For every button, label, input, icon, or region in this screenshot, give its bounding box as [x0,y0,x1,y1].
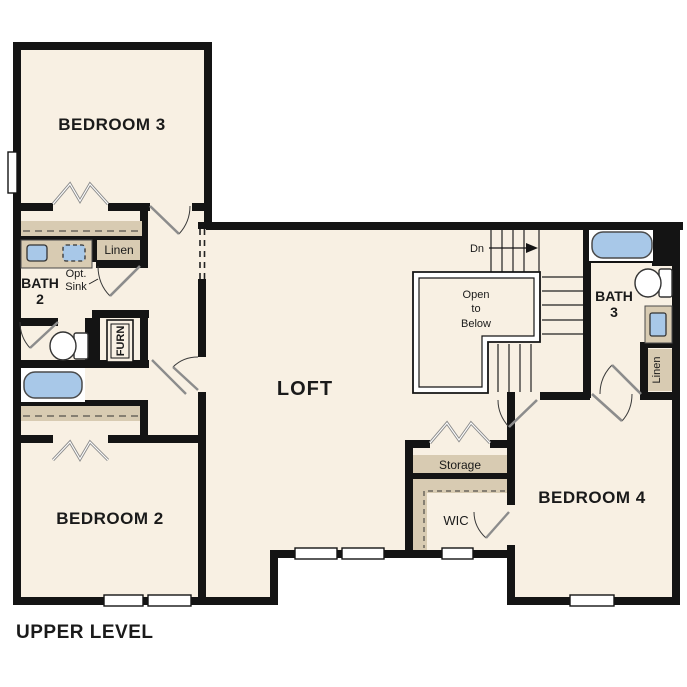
label-open-below-2: to [471,303,480,315]
bathtub-icon [24,372,82,398]
label-bedroom3: BEDROOM 3 [58,115,165,134]
toilet-icon [50,332,76,360]
wall [540,392,590,400]
closet-shelf [21,221,142,236]
wall [640,342,648,398]
label-bedroom2: BEDROOM 2 [56,509,163,528]
optional-sink-icon [63,245,85,261]
label-opt-sink2: Sink [65,281,87,293]
wall [507,545,515,605]
bathtub-icon [592,232,652,258]
wall [672,222,680,605]
sink-icon [27,245,47,261]
wall [198,222,206,229]
window [104,595,143,606]
label-linen-right: Linen [651,357,663,384]
label-loft: LOFT [277,378,333,400]
wall [212,597,278,605]
window [442,548,473,559]
wall [21,203,53,211]
wall [640,392,680,400]
label-open-below-1: Open [463,289,490,301]
toilet-icon [635,269,661,297]
wall [13,42,212,50]
wall [270,550,278,605]
wall [204,42,212,226]
label-open-below-3: Below [461,318,491,330]
label-bath3-number: 3 [610,304,618,320]
closet-shelf [21,406,140,421]
wall [405,473,515,479]
label-bedroom4: BEDROOM 4 [538,488,646,507]
wall [507,392,515,505]
label-bath3: BATH [595,288,633,304]
window [342,548,384,559]
label-opt-sink: Opt. [66,268,87,280]
wall [198,392,206,605]
label-bath2-number: 2 [36,291,44,307]
wall [192,203,204,211]
wall [140,310,148,368]
window [570,595,614,606]
wall [108,435,206,443]
wall [21,435,53,443]
label-bath2: BATH [21,275,59,291]
wall [21,236,142,240]
label-furnace: FURN [115,326,127,357]
wall [92,310,100,368]
window [148,595,191,606]
label-storage: Storage [439,458,481,472]
floor-plan: BEDROOM 3 BEDROOM 2 BEDROOM 4 LOFT BATH … [0,0,687,687]
wall [198,279,206,357]
label-linen-left: Linen [104,243,133,257]
sink-icon [650,313,666,336]
window [8,152,17,193]
label-wic: WIC [443,513,468,528]
window [295,548,337,559]
floor-loft-step [206,550,278,597]
wall [405,440,413,558]
wall [206,222,683,230]
floor-plan-svg: BEDROOM 3 BEDROOM 2 BEDROOM 4 LOFT BATH … [0,0,687,687]
label-down: Dn [470,243,484,255]
wall [490,440,515,448]
plan-title: UPPER LEVEL [16,622,153,643]
wic-shelf-left [413,493,427,550]
